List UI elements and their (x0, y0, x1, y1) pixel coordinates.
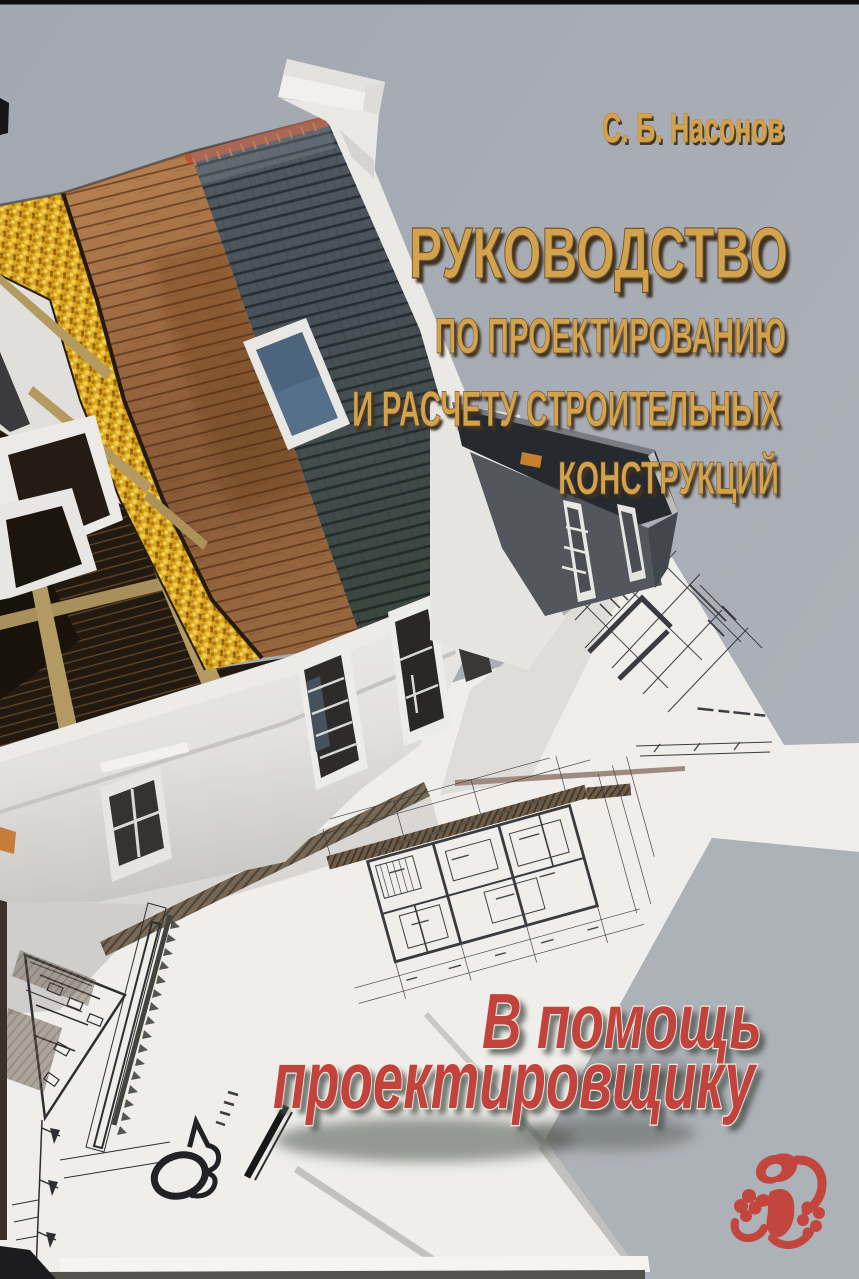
svg-text:И РАСЧЕТУ СТРОИТЕЛЬНЫХ: И РАСЧЕТУ СТРОИТЕЛЬНЫХ (352, 381, 780, 437)
svg-text:проектировщику: проектировщику (273, 1035, 758, 1126)
svg-text:С. Б. Насонов: С. Б. Насонов (602, 104, 784, 151)
svg-text:КОНСТРУКЦИЙ: КОНСТРУКЦИЙ (558, 452, 779, 504)
svg-text:ПО ПРОЕКТИРОВАНИЮ: ПО ПРОЕКТИРОВАНИЮ (435, 308, 786, 364)
svg-text:РУКОВОДСТВО: РУКОВОДСТВО (409, 214, 788, 294)
